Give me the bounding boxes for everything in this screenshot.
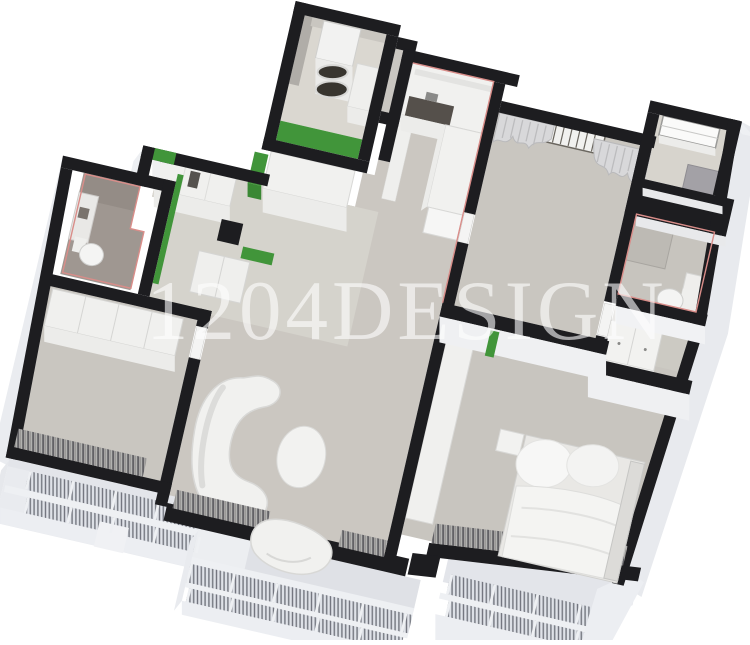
svg-text:1204DESIGN: 1204DESIGN: [146, 264, 668, 358]
